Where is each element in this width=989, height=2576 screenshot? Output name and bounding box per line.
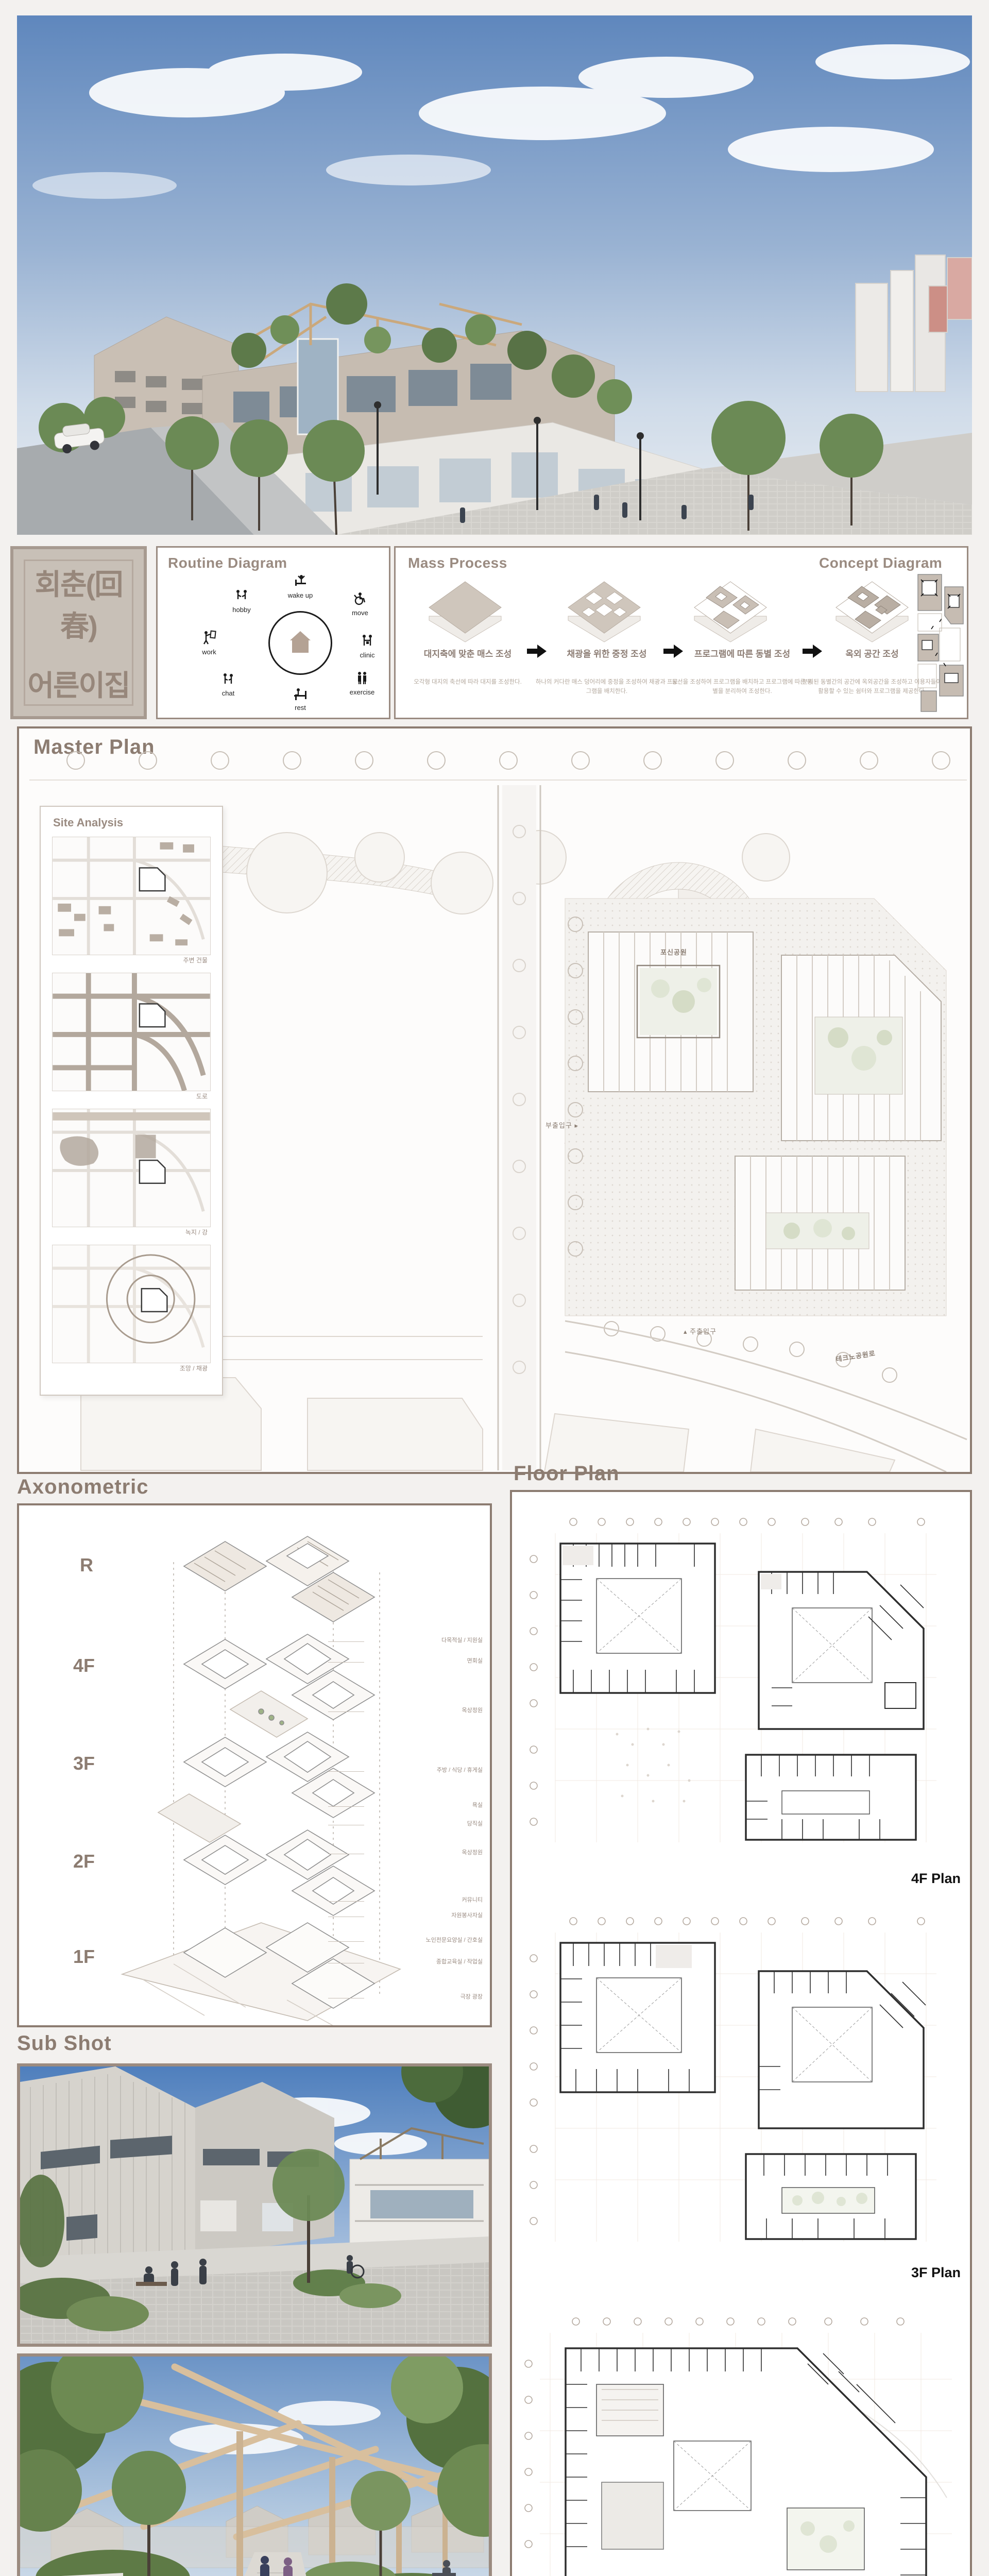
project-title-block: 회춘(回春) 어른이집 bbox=[10, 546, 147, 719]
chat-icon bbox=[220, 672, 236, 686]
floor-plan-panel: 4F Plan 3F Plan bbox=[510, 1490, 972, 2576]
mass-step-caption: 프로그램에 따른 동별 조성 bbox=[678, 647, 807, 659]
axon-annotation: 옥상정원 bbox=[369, 1850, 483, 1857]
wheelchair-icon bbox=[352, 592, 368, 605]
sub-entrance-label: 부출입구 ▸ bbox=[545, 1120, 578, 1130]
sub-shot-title: Sub Shot bbox=[17, 2033, 112, 2054]
clinic-icon bbox=[360, 634, 375, 648]
master-plan-panel: Master Plan bbox=[17, 726, 972, 1474]
analysis-card-green: 녹지 / 강 bbox=[52, 1109, 211, 1238]
axon-annotation: 면회실 bbox=[369, 1658, 483, 1665]
mass-step-graphics bbox=[411, 577, 813, 649]
house-icon bbox=[292, 639, 309, 653]
floor-label-R: R bbox=[80, 1554, 93, 1576]
mass-step-detail: 동선을 조성하여 프로그램을 배치하고 프로그램에 따른 동별을 분리하여 조성… bbox=[670, 677, 814, 697]
axon-annotation: 주방 / 식당 / 휴게실 bbox=[369, 1767, 483, 1774]
axon-annotation: 다목적실 / 지원실 bbox=[369, 1637, 483, 1645]
mass-step-caption: 대지축에 맞춘 매스 조성 bbox=[403, 647, 532, 659]
routine-item: clinic bbox=[344, 634, 390, 659]
axon-annotation: 종합교육실 / 작업실 bbox=[369, 1959, 483, 1966]
routine-item: chat bbox=[205, 672, 251, 697]
axonometric-panel: R 4F 3F 2F 1F 다목적실 / 지원실 면회실 옥상정원 주방 / 식… bbox=[17, 1503, 492, 2027]
mass-step-detail: 오각형 대지의 축선에 따라 대지를 조성한다. bbox=[396, 677, 540, 687]
floor-label-3F: 3F bbox=[73, 1753, 95, 1774]
main-entrance-label: ▴ 주출입구 bbox=[684, 1326, 717, 1336]
mass-step-caption: 채광을 위한 중정 조성 bbox=[542, 647, 671, 659]
wakeup-icon bbox=[293, 574, 308, 588]
mass-process-title: Mass Process bbox=[408, 555, 507, 571]
analysis-card-view: 조망 / 채광 bbox=[52, 1245, 211, 1374]
park-label: 포신공원 bbox=[660, 947, 687, 957]
floor-label-1F: 1F bbox=[73, 1946, 95, 1968]
routine-item: hobby bbox=[218, 589, 265, 614]
plan-label-3f: 3F Plan bbox=[911, 2265, 961, 2281]
project-title-line2: 어른이집 bbox=[25, 663, 132, 704]
exercise-icon bbox=[354, 671, 370, 685]
mass-step4-graphic bbox=[831, 577, 913, 649]
concept-diagram-graphic bbox=[916, 572, 965, 715]
project-title-line1: 회춘(回春) bbox=[25, 562, 132, 645]
mass-concept-panel: Mass Process Concept Diagram bbox=[394, 546, 968, 719]
axon-annotation: 노인전문요양실 / 간호실 bbox=[369, 1937, 483, 1944]
plan-3f-drawing bbox=[524, 1912, 957, 2252]
analysis-card-roads: 도로 bbox=[52, 973, 211, 1101]
axon-annotation: 욕실 bbox=[369, 1802, 483, 1809]
hero-render bbox=[17, 15, 972, 535]
axon-annotation: 극장 광장 bbox=[369, 1994, 483, 2001]
axon-annotation: 커뮤니티 bbox=[369, 1897, 483, 1904]
concept-diagram-title: Concept Diagram bbox=[819, 555, 942, 571]
routine-item: work bbox=[186, 630, 232, 656]
routine-item: rest bbox=[277, 688, 323, 711]
plan-label-4f: 4F Plan bbox=[911, 1871, 961, 1887]
floor-label-2F: 2F bbox=[73, 1851, 95, 1872]
sub-shot-photo-pergola-garden bbox=[17, 2353, 492, 2576]
axonometric-title: Axonometric bbox=[17, 1477, 149, 1497]
axon-annotation: 당직실 bbox=[369, 1821, 483, 1828]
routine-title: Routine Diagram bbox=[168, 555, 287, 571]
axon-annotation: 옥상정원 bbox=[369, 1707, 483, 1715]
sub-shot-photo-courtyard-plaza bbox=[17, 2063, 492, 2347]
routine-item: move bbox=[337, 592, 383, 617]
floor-label-4F: 4F bbox=[73, 1655, 95, 1676]
site-analysis-inset: Site Analysis 주변 건물 도로 bbox=[40, 806, 223, 1396]
site-analysis-title: Site Analysis bbox=[53, 816, 217, 829]
routine-diagram-panel: Routine Diagram wake up hobby move work … bbox=[156, 546, 390, 719]
plan-4f-drawing bbox=[524, 1513, 957, 1853]
routine-item: exercise bbox=[339, 671, 385, 696]
plan-2f-drawing bbox=[519, 2312, 962, 2576]
mass-step-detail: 하나의 커다란 매스 덩어리에 중정을 조성하여 채광과 프로그램을 배치한다. bbox=[535, 677, 679, 697]
work-icon bbox=[201, 630, 217, 645]
axon-annotation: 자원봉사자실 bbox=[369, 1912, 483, 1920]
floor-plan-title: Floor Plan bbox=[514, 1463, 620, 1484]
analysis-card-buildings: 주변 건물 bbox=[52, 837, 211, 965]
hobby-icon bbox=[234, 589, 249, 602]
rest-icon bbox=[292, 688, 309, 700]
routine-item: wake up bbox=[277, 574, 323, 599]
